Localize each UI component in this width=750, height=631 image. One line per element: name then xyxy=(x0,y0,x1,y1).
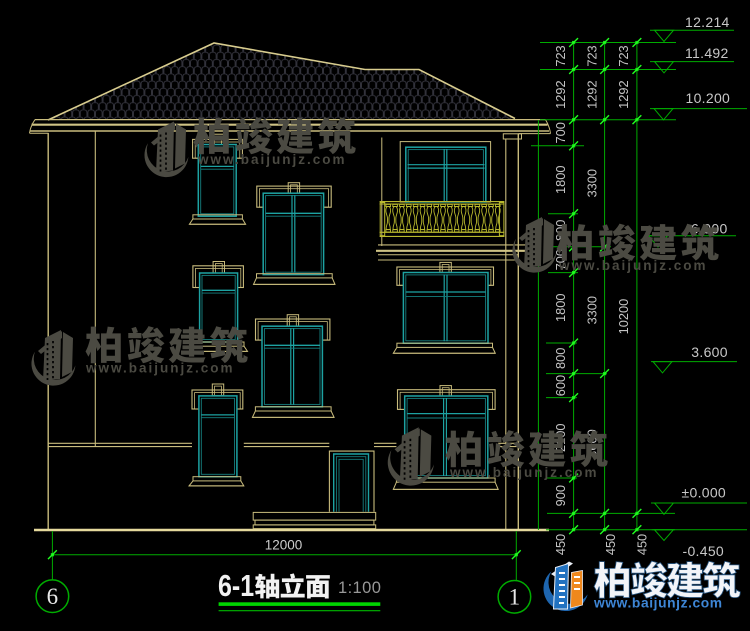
svg-text:450: 450 xyxy=(603,534,618,555)
svg-text:12000: 12000 xyxy=(265,538,303,553)
svg-text:11.492: 11.492 xyxy=(685,45,729,61)
svg-text:1292: 1292 xyxy=(585,80,600,108)
svg-text:1: 1 xyxy=(509,584,521,609)
svg-text:www.baijunjz.com: www.baijunjz.com xyxy=(558,258,708,273)
svg-text:-0.450: -0.450 xyxy=(683,543,725,559)
svg-text:3300: 3300 xyxy=(585,296,600,324)
svg-text:1:100: 1:100 xyxy=(338,579,381,597)
svg-text:www.baijunjz.com: www.baijunjz.com xyxy=(197,152,347,167)
svg-text:www.baijunjz.com: www.baijunjz.com xyxy=(85,361,235,376)
svg-text:600: 600 xyxy=(553,375,568,396)
svg-text:1292: 1292 xyxy=(553,80,568,108)
svg-text:450: 450 xyxy=(635,534,650,555)
svg-text:900: 900 xyxy=(553,485,568,506)
svg-text:3300: 3300 xyxy=(585,169,600,197)
svg-text:12.214: 12.214 xyxy=(685,14,730,30)
svg-text:6: 6 xyxy=(47,584,59,609)
svg-text:450: 450 xyxy=(553,534,568,555)
svg-text:±0.000: ±0.000 xyxy=(682,484,727,500)
svg-text:800: 800 xyxy=(553,348,568,369)
svg-text:723: 723 xyxy=(585,45,600,66)
svg-text:723: 723 xyxy=(616,45,631,66)
svg-text:3.600: 3.600 xyxy=(691,344,728,360)
svg-text:700: 700 xyxy=(553,122,568,143)
svg-text:1292: 1292 xyxy=(616,80,631,108)
svg-text:1800: 1800 xyxy=(553,294,568,322)
svg-text:1800: 1800 xyxy=(553,166,568,194)
svg-text:10200: 10200 xyxy=(616,299,631,335)
svg-text:6-1: 6-1 xyxy=(218,569,254,603)
svg-text:10.200: 10.200 xyxy=(686,90,731,106)
svg-text:www.baijunjz.com: www.baijunjz.com xyxy=(449,465,599,480)
svg-text:www.baijunjz.com: www.baijunjz.com xyxy=(593,596,723,611)
svg-text:723: 723 xyxy=(553,45,568,66)
